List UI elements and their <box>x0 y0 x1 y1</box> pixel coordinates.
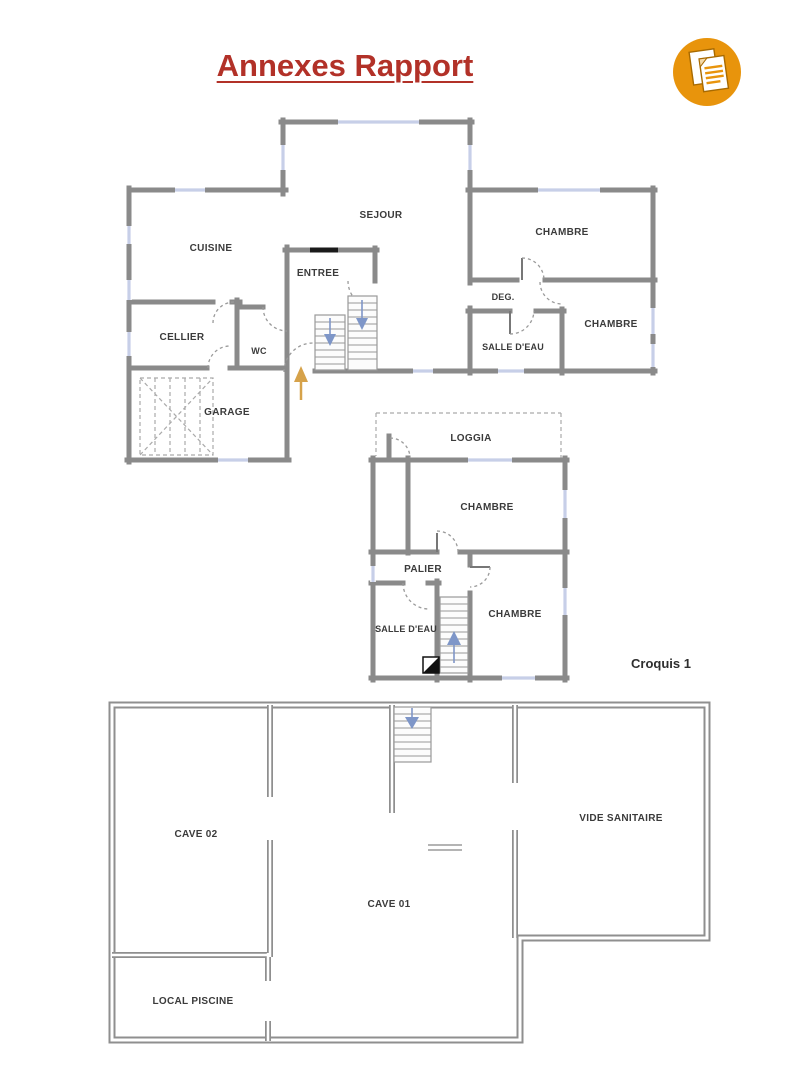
room-label-cellier: CELLIER <box>160 332 205 343</box>
room-label-vide-sanitaire: VIDE SANITAIRE <box>579 813 662 824</box>
basement-inner-walls <box>112 705 515 1041</box>
report-annex-page: Annexes Rapport <box>0 0 800 1065</box>
room-label-local-piscine: LOCAL PISCINE <box>153 996 234 1007</box>
stair-marker-icon <box>423 657 439 673</box>
room-label-palier: PALIER <box>404 564 442 575</box>
room-label-sejour: SEJOUR <box>360 210 403 221</box>
room-label-chambre-1: CHAMBRE <box>535 227 588 238</box>
room-label-entree: ENTREE <box>297 268 339 279</box>
documents-icon <box>673 38 741 106</box>
room-label-cave-01: CAVE 01 <box>367 899 410 910</box>
rdc-staircase <box>315 296 377 370</box>
room-label-deg: DEG. <box>492 292 515 302</box>
room-label-chambre-2: CHAMBRE <box>584 319 637 330</box>
ground-floor-plan: SEJOUR CUISINE ENTREE CHAMBRE DEG. SALLE… <box>127 120 655 462</box>
etage-walls <box>371 436 567 680</box>
room-label-wc: WC <box>251 346 267 356</box>
niche-mark <box>428 845 462 850</box>
basement-staircase <box>394 707 431 762</box>
room-label-chambre-bas: CHAMBRE <box>488 609 541 620</box>
garage-dashed-stair <box>140 378 213 455</box>
room-label-loggia: LOGGIA <box>450 433 491 444</box>
room-label-cuisine: CUISINE <box>190 243 233 254</box>
room-label-salle-eau-etage: SALLE D'EAU <box>375 624 437 634</box>
room-label-salle-eau: SALLE D'EAU <box>482 342 544 352</box>
etage-staircase <box>440 597 468 673</box>
floorplans-canvas: SEJOUR CUISINE ENTREE CHAMBRE DEG. SALLE… <box>0 0 800 1065</box>
room-label-garage: GARAGE <box>204 407 250 418</box>
upper-floor-plan: LOGGIA CHAMBRE PALIER SALLE D'EAU CHAMBR… <box>371 413 567 680</box>
entrance-arrow-icon <box>294 366 308 400</box>
room-label-cave-02: CAVE 02 <box>174 829 217 840</box>
basement-plan: CAVE 02 VIDE SANITAIRE CAVE 01 LOCAL PIS… <box>112 705 707 1041</box>
room-label-chambre-haut: CHAMBRE <box>460 502 513 513</box>
croquis-caption: Croquis 1 <box>631 656 691 671</box>
